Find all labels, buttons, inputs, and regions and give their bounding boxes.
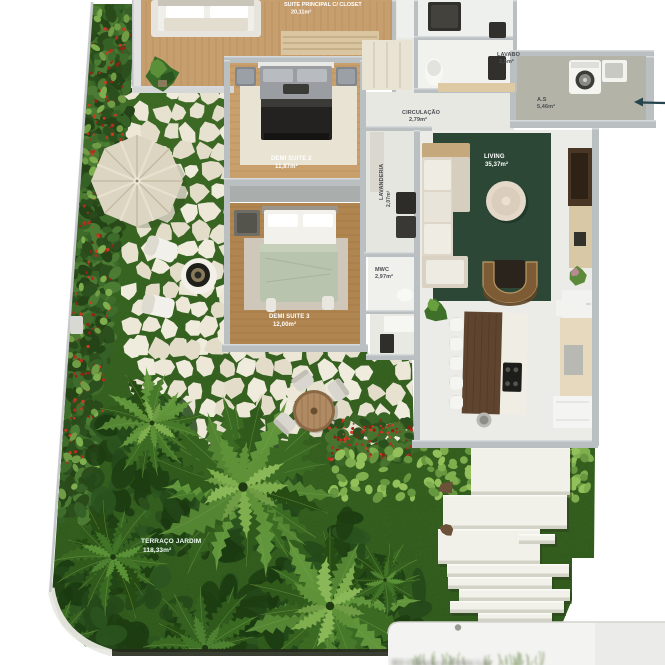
svg-text:DEMI SUITE 2: DEMI SUITE 2 — [271, 156, 312, 162]
svg-text:11,87m²: 11,87m² — [275, 163, 298, 170]
svg-text:35,37m²: 35,37m² — [485, 161, 508, 168]
svg-text:MWC: MWC — [375, 267, 389, 273]
svg-text:SUITE PRINCIPAL C/ CLOSET: SUITE PRINCIPAL C/ CLOSET — [284, 2, 362, 8]
svg-text:2,07m²: 2,07m² — [386, 190, 392, 207]
svg-text:LAVABO: LAVABO — [497, 52, 521, 58]
svg-text:2,79m²: 2,79m² — [409, 116, 427, 123]
svg-text:20,11m²: 20,11m² — [291, 9, 311, 16]
svg-text:LAVANDERIA: LAVANDERIA — [379, 164, 385, 200]
svg-text:B3 Cultura e Vinho Lar: B3 Cultura e Vinho Lar — [392, 658, 491, 665]
svg-text:CIRCULAÇÃO: CIRCULAÇÃO — [402, 109, 441, 116]
svg-text:LIVING: LIVING — [484, 154, 505, 160]
svg-text:DEMI SUITE 3: DEMI SUITE 3 — [269, 314, 310, 320]
svg-text:5,46m²: 5,46m² — [537, 103, 555, 110]
svg-text:2,5m²: 2,5m² — [499, 58, 514, 65]
svg-text:2,97m²: 2,97m² — [375, 273, 393, 280]
svg-text:TERRAÇO JARDIM: TERRAÇO JARDIM — [141, 538, 201, 545]
svg-text:12,00m²: 12,00m² — [273, 321, 296, 328]
svg-text:A.S: A.S — [537, 97, 547, 103]
svg-text:118,33m²: 118,33m² — [143, 547, 172, 554]
